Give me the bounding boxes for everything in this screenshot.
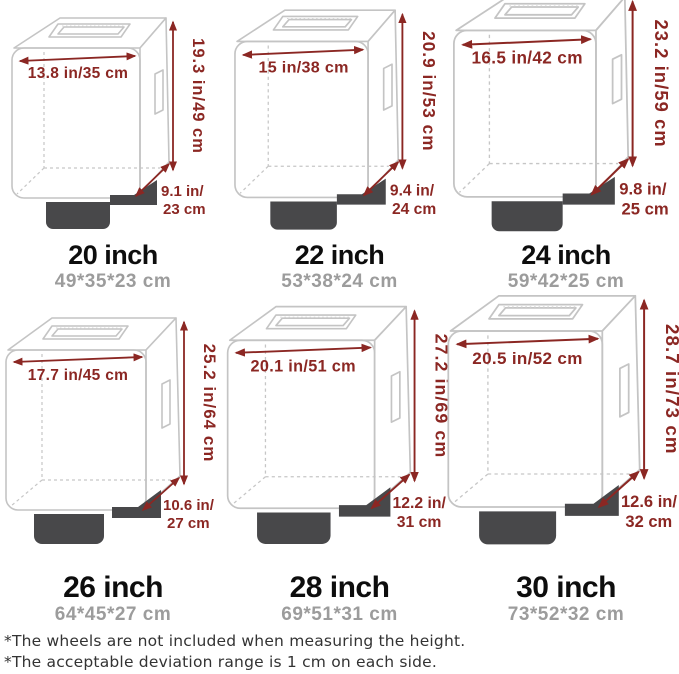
width-arrow [457, 339, 598, 345]
height-dimension-label: 23.2 in/59 cm [651, 19, 672, 147]
width-arrow [20, 56, 135, 61]
front-wheel [257, 512, 331, 544]
luggage-wireframe [454, 0, 628, 231]
luggage-diagram-20-inch: 13.8 in/35 cm 19.3 in/49 cm 9.1 in/ 23 c… [0, 6, 226, 236]
depth-dimension-line2: 27 cm [167, 515, 210, 532]
size-cm: 73*52*32 cm [508, 604, 624, 626]
size-title: 22 inch [295, 241, 385, 271]
luggage-wireframe [6, 318, 180, 544]
size-cm: 64*45*27 cm [55, 604, 171, 626]
depth-dimension-line2: 32 cm [625, 513, 672, 531]
luggage-wireframe [227, 307, 410, 544]
size-card-22-inch: 15 in/38 cm 20.9 in/53 cm 9.4 in/ 24 cm … [226, 0, 453, 294]
depth-dimension-line1: 9.8 in/ [619, 180, 667, 199]
luggage-wireframe [12, 18, 169, 229]
size-title: 28 inch [290, 571, 390, 604]
luggage-diagram-26-inch: 17.7 in/45 cm 25.2 in/64 cm 10.6 in/ 27 … [0, 304, 226, 566]
luggage-wireframe [234, 10, 397, 229]
size-title: 30 inch [516, 571, 616, 604]
size-title: 20 inch [68, 241, 158, 271]
luggage-wireframe [448, 296, 639, 545]
footnote-deviation: *The acceptable deviation range is 1 cm … [4, 652, 679, 673]
depth-dimension-line1: 9.4 in/ [389, 182, 434, 199]
luggage-diagram-30-inch: 20.5 in/52 cm 28.7 in/73 cm 12.6 in/ 32 … [442, 280, 679, 568]
height-dimension-label: 25.2 in/64 cm [200, 344, 219, 463]
width-dimension-label: 20.5 in/52 cm [472, 349, 582, 368]
front-wheel [46, 202, 110, 229]
width-dimension-label: 15 in/38 cm [258, 59, 348, 77]
size-chart-row-2: 17.7 in/45 cm 25.2 in/64 cm 10.6 in/ 27 … [0, 294, 679, 628]
width-dimension-label: 13.8 in/35 cm [28, 65, 128, 82]
size-chart-row-1: 13.8 in/35 cm 19.3 in/49 cm 9.1 in/ 23 c… [0, 0, 679, 294]
depth-dimension-line2: 31 cm [396, 514, 441, 531]
depth-dimension-line1: 12.2 in/ [392, 495, 446, 512]
footnote-wheels: *The wheels are not included when measur… [4, 631, 679, 652]
luggage-diagram-22-inch: 15 in/38 cm 20.9 in/53 cm 9.4 in/ 24 cm [222, 0, 457, 237]
width-dimension-label: 20.1 in/51 cm [250, 358, 355, 376]
front-wheel [270, 202, 337, 230]
height-dimension-label: 20.9 in/53 cm [419, 31, 439, 151]
luggage-diagram-28-inch: 20.1 in/51 cm 27.2 in/69 cm 12.2 in/ 31 … [221, 292, 458, 567]
width-dimension-label: 17.7 in/45 cm [28, 367, 128, 384]
size-title: 24 inch [521, 241, 611, 271]
front-wheel [479, 511, 556, 544]
size-cm: 53*38*24 cm [281, 271, 397, 293]
size-title: 26 inch [63, 571, 163, 604]
width-arrow [243, 50, 363, 55]
luggage-diagram-24-inch: 16.5 in/42 cm 23.2 in/59 cm 9.8 in/ 25 c… [441, 0, 679, 239]
depth-dimension-line1: 10.6 in/ [163, 497, 215, 514]
width-arrow [463, 39, 591, 45]
front-wheel [34, 514, 104, 544]
size-card-26-inch: 17.7 in/45 cm 25.2 in/64 cm 10.6 in/ 27 … [0, 294, 226, 628]
size-cm: 49*35*23 cm [55, 271, 171, 293]
depth-dimension-line1: 12.6 in/ [621, 493, 677, 511]
width-dimension-label: 16.5 in/42 cm [471, 48, 582, 68]
size-cm: 69*51*31 cm [281, 604, 397, 626]
width-arrow [14, 357, 142, 362]
size-card-30-inch: 20.5 in/52 cm 28.7 in/73 cm 12.6 in/ 32 … [453, 294, 679, 628]
size-card-28-inch: 20.1 in/51 cm 27.2 in/69 cm 12.2 in/ 31 … [226, 294, 453, 628]
depth-dimension-line2: 23 cm [163, 201, 206, 218]
height-dimension-label: 28.7 in/73 cm [662, 324, 679, 455]
width-arrow [236, 348, 370, 353]
height-dimension-label: 19.3 in/49 cm [189, 38, 207, 154]
footnotes: *The wheels are not included when measur… [4, 631, 679, 674]
size-card-20-inch: 13.8 in/35 cm 19.3 in/49 cm 9.1 in/ 23 c… [0, 0, 226, 294]
depth-dimension-line1: 9.1 in/ [161, 183, 204, 200]
depth-dimension-line2: 24 cm [392, 201, 436, 218]
size-card-24-inch: 16.5 in/42 cm 23.2 in/59 cm 9.8 in/ 25 c… [453, 0, 679, 294]
front-wheel [492, 201, 563, 231]
depth-dimension-line2: 25 cm [622, 200, 669, 219]
